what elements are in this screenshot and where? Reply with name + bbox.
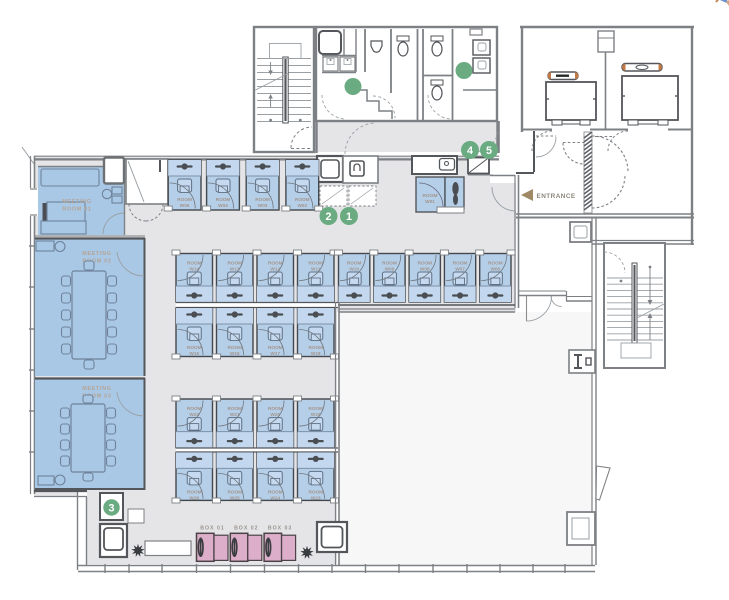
svg-text:W02: W02 [297, 203, 307, 208]
svg-text:W10: W10 [349, 267, 359, 272]
svg-text:ENTRANCE: ENTRANCE [537, 193, 576, 200]
svg-text:W03: W03 [258, 203, 268, 208]
svg-text:W04: W04 [218, 203, 228, 208]
svg-text:W16: W16 [230, 351, 240, 356]
svg-text:ROOM: ROOM [453, 261, 468, 266]
svg-text:W15: W15 [189, 351, 199, 356]
svg-text:ROOM: ROOM [308, 345, 323, 350]
svg-text:ROOM: ROOM [177, 197, 192, 202]
svg-text:W07: W07 [455, 267, 465, 272]
svg-text:1: 1 [346, 211, 352, 223]
svg-text:MEETING: MEETING [82, 251, 111, 257]
svg-text:ROOM: ROOM [268, 345, 283, 350]
svg-text:ROOM: ROOM [227, 406, 242, 411]
svg-text:4: 4 [467, 145, 473, 157]
svg-text:ROOM: ROOM [423, 193, 438, 199]
svg-text:ROOM: ROOM [268, 406, 283, 411]
svg-text:ROOM: ROOM [417, 261, 432, 266]
svg-text:ROOM: ROOM [488, 261, 503, 266]
svg-text:BOX 01: BOX 01 [200, 526, 224, 532]
svg-text:ROOM 01: ROOM 01 [62, 207, 91, 213]
svg-text:ROOM: ROOM [187, 406, 202, 411]
svg-text:ROOM: ROOM [308, 406, 323, 411]
svg-text:W09: W09 [385, 267, 395, 272]
svg-text:BOX 03: BOX 03 [268, 526, 292, 532]
svg-text:ROOM: ROOM [187, 489, 202, 494]
svg-text:W24: W24 [270, 495, 280, 500]
svg-text:MEETING: MEETING [82, 386, 111, 392]
svg-text:MEETING: MEETING [62, 199, 91, 205]
svg-text:ROOM: ROOM [255, 197, 270, 202]
svg-text:W05: W05 [180, 203, 190, 208]
svg-text:3: 3 [108, 502, 114, 514]
svg-text:2: 2 [325, 211, 331, 223]
svg-text:W25: W25 [230, 495, 240, 500]
svg-text:W26: W26 [189, 495, 199, 500]
svg-text:BOX 02: BOX 02 [234, 526, 258, 532]
svg-text:ROOM: ROOM [227, 261, 242, 266]
svg-text:5: 5 [486, 145, 492, 157]
svg-text:ROOM: ROOM [187, 345, 202, 350]
svg-text:W08: W08 [420, 267, 430, 272]
svg-text:ROOM: ROOM [227, 489, 242, 494]
svg-text:ROOM: ROOM [295, 197, 310, 202]
svg-text:W01: W01 [425, 199, 435, 205]
svg-text:ROOM: ROOM [227, 345, 242, 350]
svg-text:ROOM: ROOM [268, 261, 283, 266]
svg-text:ROOM: ROOM [347, 261, 362, 266]
svg-text:ROOM: ROOM [308, 489, 323, 494]
svg-text:ROOM: ROOM [382, 261, 397, 266]
svg-text:ROOM: ROOM [268, 489, 283, 494]
svg-text:W06: W06 [491, 267, 501, 272]
svg-text:ROOM: ROOM [216, 197, 231, 202]
svg-text:ROOM: ROOM [308, 261, 323, 266]
svg-text:W17: W17 [270, 351, 280, 356]
svg-text:W18: W18 [311, 351, 321, 356]
svg-text:W23: W23 [311, 495, 321, 500]
svg-text:ROOM: ROOM [187, 261, 202, 266]
